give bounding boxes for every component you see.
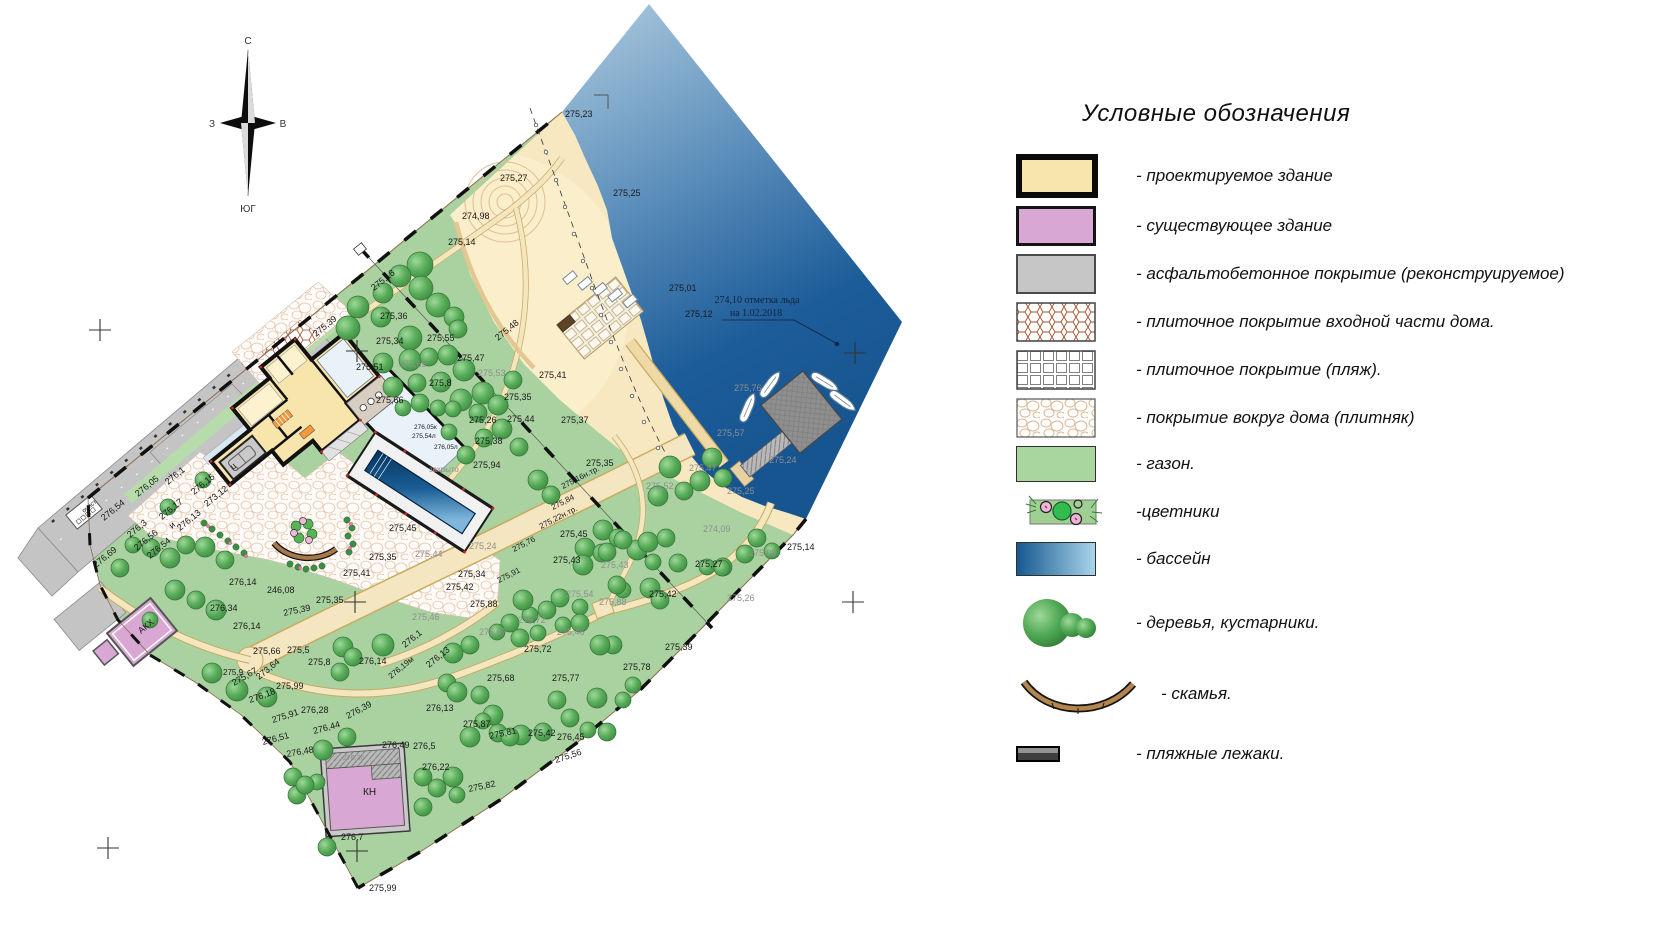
elevation-label: 275,67 xyxy=(479,627,507,637)
legend: Условные обозначения - проектируемое зда… xyxy=(1016,100,1616,772)
elevation-label: 274,98 xyxy=(462,211,490,221)
elevation-label: 275,8 xyxy=(429,378,452,388)
legend-item-label: - бассейн xyxy=(1136,549,1211,569)
elevation-label: 275,24 xyxy=(469,541,497,551)
shore-mark-icon xyxy=(534,123,538,127)
tree-icon xyxy=(638,532,658,552)
shore-mark-icon xyxy=(609,340,613,344)
legend-item-tile_beach: - плиточное покрытие (пляж). xyxy=(1016,350,1616,390)
elevation-label: 275,35 xyxy=(369,552,397,562)
elevation-label: 275,94 xyxy=(473,460,501,470)
tree-icon xyxy=(338,728,356,746)
elevation-label: 275,36 xyxy=(380,311,408,321)
legend-item-trees: - деревья, кустарники. xyxy=(1016,592,1616,654)
legend-item-label: -цветники xyxy=(1136,502,1220,522)
elevation-label: 275,47 xyxy=(457,353,485,363)
legend-swatch-wrap xyxy=(1016,254,1116,294)
tree-icon xyxy=(615,692,631,708)
elevation-label: 275,42 xyxy=(446,582,474,592)
tree-icon xyxy=(657,529,675,547)
elevation-label: 275,35 xyxy=(504,392,532,402)
elevation-label: 275,77 xyxy=(552,673,580,683)
elevation-label: 275,27 xyxy=(500,173,528,183)
elevation-label: 275,54л xyxy=(412,433,436,440)
elevation-label: 275,41 xyxy=(343,568,371,578)
legend-swatch-loungers xyxy=(1016,746,1060,762)
flower-icon xyxy=(349,522,352,525)
elevation-label: 275,12 xyxy=(685,309,713,319)
elevation-label: 275,5 xyxy=(287,645,310,655)
shore-mark-icon xyxy=(581,259,585,263)
elevation-label: 275,99 xyxy=(276,681,304,691)
legend-item-label: - скамья. xyxy=(1161,684,1232,704)
legend-item-stone: - покрытие вокруг дома (плитняк) xyxy=(1016,398,1616,438)
tree-icon xyxy=(598,543,616,561)
tree-icon xyxy=(187,591,205,609)
legend-item-bench: - скамья. xyxy=(1016,670,1616,718)
legend-items: - проектируемое здание- существующее зда… xyxy=(1016,154,1616,764)
elevation-label: 276,34 xyxy=(210,603,238,613)
compass-south-label: ЮГ xyxy=(240,204,256,215)
site-plan-drawing: С ЮГ З В xyxy=(0,0,905,945)
elevation-label: 275,34 xyxy=(458,569,486,579)
tree-icon xyxy=(504,371,522,389)
tree-icon xyxy=(447,682,467,702)
elevation-label: 275,52 xyxy=(646,481,674,491)
legend-item-label: - покрытие вокруг дома (плитняк) xyxy=(1136,408,1414,428)
shore-mark-icon xyxy=(590,286,594,290)
flower-icon xyxy=(298,566,301,569)
flower-icon xyxy=(348,546,351,549)
tree-icon xyxy=(411,394,429,412)
elevation-label: 276,05л xyxy=(434,444,458,451)
survey-cross-icon xyxy=(89,319,111,341)
legend-swatch-pool xyxy=(1016,542,1096,576)
elevation-label: 275,38 xyxy=(475,436,503,446)
tree-icon xyxy=(430,400,446,416)
shore-mark-icon xyxy=(642,420,646,424)
elevation-label: закрыто xyxy=(429,465,459,474)
elevation-label: 275,65 xyxy=(399,359,427,369)
bush-icon xyxy=(344,517,350,523)
tree-icon xyxy=(510,438,528,456)
legend-swatch-wrap xyxy=(1016,302,1116,342)
flower-icon xyxy=(228,541,231,544)
elevation-label: 275,25 xyxy=(613,188,641,198)
legend-item-label: - проектируемое здание xyxy=(1136,166,1333,186)
shore-mark-icon xyxy=(563,205,567,209)
elevation-label: 275,26 xyxy=(727,593,755,603)
elevation-label: 276,46 xyxy=(557,627,585,637)
elevation-label: 275,54 xyxy=(566,589,594,599)
elevation-label: 275,14 xyxy=(787,542,815,552)
tree-icon xyxy=(528,470,548,490)
tree-icon xyxy=(313,740,333,760)
flower-icon xyxy=(206,524,209,527)
elevation-label: 276,05к xyxy=(414,424,437,431)
legend-swatch-stone xyxy=(1016,398,1096,438)
legend-item-lawn: - газон. xyxy=(1016,446,1616,482)
tree-icon xyxy=(513,590,533,610)
tree-icon xyxy=(461,636,479,654)
ice-note-line2: на 1.02.2018 xyxy=(730,308,782,319)
elevation-label: 275,53 xyxy=(478,368,506,378)
elevation-label: 276,49 xyxy=(382,740,410,750)
legend-item-label: - газон. xyxy=(1136,454,1195,474)
legend-swatch-new_building xyxy=(1016,154,1098,198)
legend-item-asphalt: - асфальтобетонное покрытие (реконструир… xyxy=(1016,254,1616,294)
legend-item-flowers: -цветники xyxy=(1016,490,1616,534)
tree-icon xyxy=(530,625,546,641)
legend-item-exist_building: - существующее здание xyxy=(1016,206,1616,246)
legend-swatch-wrap xyxy=(1016,592,1116,654)
tree-icon xyxy=(318,838,336,856)
elevation-label: 275,8 xyxy=(308,657,331,667)
bush-icon xyxy=(311,565,317,571)
legend-item-new_building: - проектируемое здание xyxy=(1016,154,1616,198)
elevation-label: 275,45 xyxy=(389,523,417,533)
elevation-label: 275,42 xyxy=(649,589,677,599)
shore-mark-icon xyxy=(619,367,623,371)
bush-icon xyxy=(201,520,207,526)
elevation-label: 275,41 xyxy=(539,370,567,380)
legend-swatch-flowers xyxy=(1016,490,1111,534)
elevation-label: 275,27 xyxy=(695,559,723,569)
legend-swatch-lawn xyxy=(1016,446,1096,482)
tree-icon xyxy=(572,599,588,615)
bush-icon xyxy=(217,532,223,538)
tree-icon xyxy=(590,635,610,655)
legend-item-pool: - бассейн xyxy=(1016,542,1616,576)
legend-swatch-wrap xyxy=(1016,350,1116,390)
elevation-label: 275,66 xyxy=(253,646,281,656)
elevation-label: 276,13 xyxy=(426,703,454,713)
legend-item-label: - плиточное покрытие входной части дома. xyxy=(1136,312,1495,332)
legend-item-label: - асфальтобетонное покрытие (реконструир… xyxy=(1136,264,1565,284)
bush-icon xyxy=(346,549,352,555)
tree-icon xyxy=(165,580,185,600)
tree-icon xyxy=(614,531,632,549)
tree-icon xyxy=(428,779,446,797)
elevation-label: 275,14 xyxy=(448,237,476,247)
elevation-label: 275,88 xyxy=(599,597,627,607)
tree-icon xyxy=(216,551,234,569)
bush-icon xyxy=(350,541,356,547)
legend-item-tile_entry: - плиточное покрытие входной части дома. xyxy=(1016,302,1616,342)
legend-swatch-wrap xyxy=(1016,542,1116,576)
tree-icon xyxy=(460,727,480,747)
compass-west-label: З xyxy=(209,119,215,130)
legend-item-label: - деревья, кустарники. xyxy=(1136,613,1319,633)
bush-icon xyxy=(287,561,293,567)
legend-item-loungers: - пляжные лежаки. xyxy=(1016,744,1616,764)
elevation-label: 275,87 xyxy=(463,719,491,729)
tree-icon xyxy=(438,345,458,365)
tree-icon xyxy=(608,576,626,594)
compass-rose: С ЮГ З В xyxy=(209,36,287,215)
legend-swatch-wrap xyxy=(1016,154,1116,198)
elevation-label: 276,14 xyxy=(229,577,257,587)
tree-icon xyxy=(202,663,222,683)
flower-icon xyxy=(244,554,247,557)
elevation-label: 275,45 xyxy=(560,529,588,539)
elevation-label: 276,14 xyxy=(359,656,387,666)
elevation-label: 276,5 xyxy=(413,741,436,751)
elevation-label: 275,46 xyxy=(412,612,440,622)
compass-east-label: В xyxy=(280,119,287,130)
tree-icon xyxy=(383,377,403,397)
tree-icon xyxy=(471,686,489,704)
tree-icon xyxy=(675,482,693,500)
legend-swatch-exist_building xyxy=(1016,206,1096,246)
elevation-label: 275,25 xyxy=(727,486,755,496)
tree-icon xyxy=(111,559,129,577)
tree-icon xyxy=(625,677,641,693)
elevation-label: 275,26 xyxy=(469,415,497,425)
tree-icon xyxy=(748,529,766,547)
elevation-label: 275,66 xyxy=(376,395,404,405)
legend-swatch-wrap xyxy=(1016,446,1116,482)
site-plan-page: С ЮГ З В xyxy=(0,0,1680,945)
legend-item-label: - плиточное покрытие (пляж). xyxy=(1136,360,1382,380)
elevation-label: 275,23 xyxy=(565,109,593,119)
elevation-label: 275,47 xyxy=(689,463,717,473)
elevation-label: 275,43 xyxy=(601,560,629,570)
bush-icon xyxy=(303,566,309,572)
legend-item-label: - существующее здание xyxy=(1136,216,1332,236)
elevation-label: 276,45 xyxy=(557,732,585,742)
tree-icon xyxy=(548,691,566,709)
elevation-label: 274,09 xyxy=(703,524,731,534)
elevation-label: 275,01 xyxy=(669,283,697,293)
elevation-label: КН xyxy=(363,787,376,798)
elevation-label: 275,76 xyxy=(734,383,762,393)
tree-icon xyxy=(598,723,616,741)
compass-north-label: С xyxy=(244,36,251,47)
tree-icon xyxy=(441,424,457,440)
elevation-label: 275,99 xyxy=(369,883,397,893)
tree-icon xyxy=(414,798,432,816)
tree-icon xyxy=(449,787,465,803)
tree-icon xyxy=(195,537,215,557)
tree-icon xyxy=(645,554,661,570)
elevation-label: 275,42 xyxy=(528,728,556,738)
tree-icon xyxy=(445,401,461,417)
survey-cross-icon xyxy=(97,837,119,859)
bush-icon xyxy=(209,526,215,532)
bush-icon xyxy=(345,533,351,539)
elevation-label: 275,88 xyxy=(470,599,498,609)
elevation-label: 275,37 xyxy=(561,415,589,425)
elevation-label: 275,78 xyxy=(623,662,651,672)
shore-mark-icon xyxy=(572,232,576,236)
elevation-label: 275,72 xyxy=(518,615,546,625)
legend-swatch-wrap xyxy=(1016,670,1141,718)
elevation-label: 275,34 xyxy=(376,336,404,346)
tree-icon xyxy=(659,456,681,478)
elevation-label: 275,08 xyxy=(749,548,777,558)
tree-icon xyxy=(331,663,349,681)
elevation-label: 276,22 xyxy=(422,762,450,772)
elevation-label: 275,68 xyxy=(487,673,515,683)
legend-swatch-tile-entry xyxy=(1016,302,1096,342)
tree-icon xyxy=(690,471,710,491)
elevation-label: 275,57 xyxy=(717,428,745,438)
elevation-label: 275,51 xyxy=(356,362,384,372)
shore-mark-icon xyxy=(630,394,634,398)
shore-mark-icon xyxy=(656,446,660,450)
bush-icon xyxy=(319,563,325,569)
elevation-label: 275,43 xyxy=(553,555,581,565)
survey-cross-icon xyxy=(842,591,864,613)
legend-swatch-trees xyxy=(1016,592,1111,654)
elevation-label: 246,08 xyxy=(267,585,295,595)
elevation-label: 275,44 xyxy=(415,549,443,559)
legend-swatch-asphalt xyxy=(1016,254,1096,294)
legend-swatch-wrap xyxy=(1016,490,1116,534)
elevation-label: 276,28 xyxy=(301,705,329,715)
legend-title: Условные обозначения xyxy=(1082,100,1616,128)
legend-swatch-wrap xyxy=(1016,206,1116,246)
tree-icon xyxy=(408,374,426,392)
shore-mark-icon xyxy=(599,313,603,317)
elevation-label: 275,72 xyxy=(524,644,552,654)
tree-icon xyxy=(587,688,607,708)
bush-icon xyxy=(349,525,355,531)
legend-swatch-bench xyxy=(1016,670,1141,718)
elevation-label: 275,24 xyxy=(769,455,797,465)
tree-icon xyxy=(347,296,369,318)
ice-note-line1: 274,10 отметка льда xyxy=(714,295,800,306)
elevation-label: 275,55 xyxy=(427,333,455,343)
elevation-label: 275,44 xyxy=(507,414,535,424)
bush-icon xyxy=(233,544,239,550)
shore-mark-icon xyxy=(554,178,558,182)
tree-icon xyxy=(714,469,732,487)
elevation-label: 275,35 xyxy=(316,595,344,605)
elevation-label: 275,39 xyxy=(665,642,693,652)
tree-icon xyxy=(669,554,687,572)
tree-icon xyxy=(336,316,360,340)
elevation-label: 276,36 xyxy=(343,755,365,762)
legend-item-label: - пляжные лежаки. xyxy=(1136,744,1284,764)
legend-swatch-wrap xyxy=(1016,746,1116,762)
elevation-label: 276,14 xyxy=(233,621,261,631)
legend-swatch-tile-beach xyxy=(1016,350,1096,390)
tree-icon xyxy=(177,536,195,554)
tree-icon xyxy=(372,634,394,656)
tree-icon xyxy=(296,776,314,794)
legend-swatch-wrap xyxy=(1016,398,1116,438)
elevation-label: 276,7 xyxy=(341,832,364,842)
shore-mark-icon xyxy=(544,150,548,154)
tree-icon xyxy=(561,709,579,727)
